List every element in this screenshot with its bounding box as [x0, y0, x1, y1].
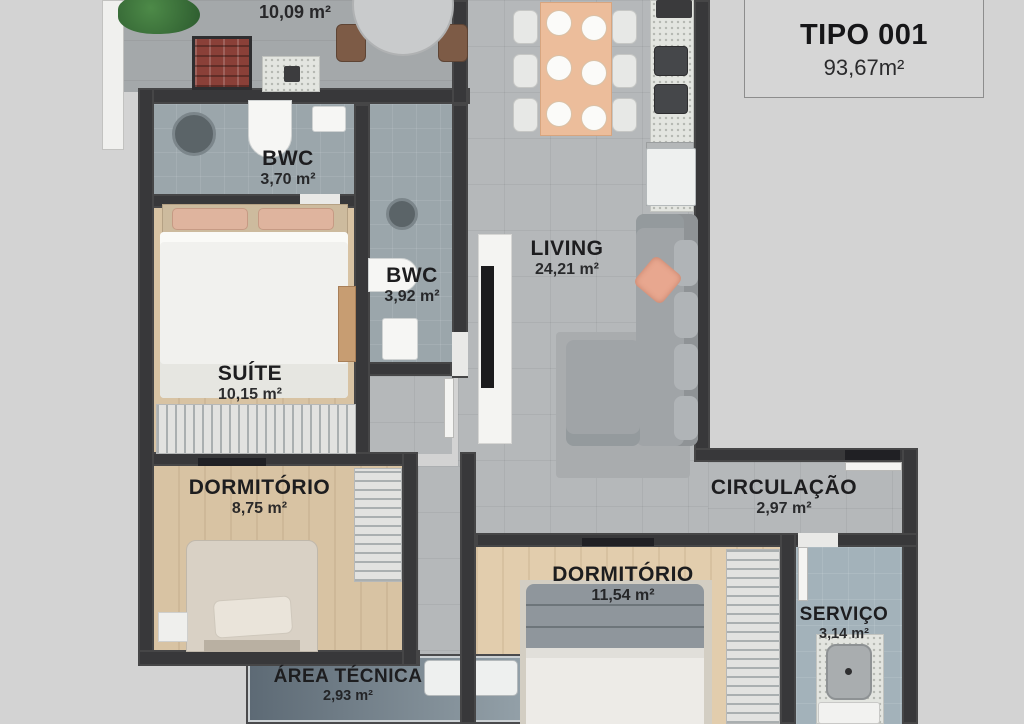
dorm1-headboard	[204, 640, 300, 652]
ac-condenser-unit	[472, 660, 518, 696]
room-area: 3,14 m²	[788, 626, 900, 643]
room-label-living: LIVING 24,21 m²	[486, 237, 648, 280]
tank-drain	[845, 668, 852, 675]
room-area: 3,70 m²	[233, 171, 343, 189]
wall-left-outer	[138, 88, 154, 666]
washer	[818, 702, 880, 724]
tv	[481, 266, 494, 388]
entry-door	[845, 450, 900, 460]
bbq-grill	[192, 36, 252, 90]
dorm2-wardrobe	[726, 549, 780, 724]
room-area: 3,92 m²	[362, 288, 462, 306]
room-name: SUÍTE	[185, 362, 315, 386]
unit-total-area: 93,67m²	[745, 55, 983, 81]
place-setting	[546, 101, 572, 127]
room-label-servico: SERVIÇO 3,14 m²	[788, 604, 900, 643]
door-leaf-servico	[798, 547, 808, 601]
door-lintel-dormitorio2	[582, 538, 654, 546]
place-setting	[546, 10, 572, 36]
bwc2-shower	[386, 198, 418, 230]
place-setting	[546, 55, 572, 81]
room-area: 8,75 m²	[172, 500, 347, 518]
room-label-dormitorio-1: DORMITÓRIO 8,75 m²	[172, 476, 347, 519]
room-name: DORMITÓRIO	[523, 563, 723, 587]
bwc2-sink	[382, 318, 418, 360]
entry-door-leaf	[845, 462, 902, 471]
suite-pillow	[258, 208, 334, 230]
wall-dorm1-right	[402, 452, 418, 666]
door-gap-bwc2	[452, 332, 468, 376]
dining-chair	[612, 98, 637, 132]
dining-chair	[513, 98, 538, 132]
dorm1-nightstand	[158, 612, 188, 642]
room-label-suite: SUÍTE 10,15 m²	[185, 362, 315, 405]
kitchen-sink	[654, 84, 688, 114]
dining-chair	[612, 54, 637, 88]
title-block: TIPO 001 93,67m²	[744, 0, 984, 98]
room-name: LIVING	[486, 237, 648, 261]
dorm2-bed	[526, 648, 704, 724]
room-area: 10,15 m²	[185, 386, 315, 404]
floor-plan: 10,09 m² BWC 3,70 m² BWC 3,92 m² LIVING …	[0, 0, 1024, 724]
balcony-sink	[284, 66, 300, 82]
sofa-cushion	[674, 292, 698, 338]
suite-wardrobe	[156, 404, 356, 454]
wall-right-outer	[902, 448, 918, 724]
sofa-cushion	[674, 344, 698, 390]
room-name: DORMITÓRIO	[172, 476, 347, 500]
dorm1-pillow	[213, 595, 293, 638]
unit-type-label: TIPO 001	[745, 19, 983, 52]
dining-chair	[612, 10, 637, 44]
room-label-bwc-suite: BWC 3,70 m²	[233, 147, 343, 190]
door-lintel-dormitorio1	[198, 458, 266, 466]
side-table	[646, 148, 696, 206]
wall-dorm2-left	[460, 452, 476, 724]
sofa-cushion	[674, 396, 698, 440]
cooktop	[656, 0, 692, 18]
wall-suite-dorm1	[152, 452, 418, 466]
room-area: 2,97 m²	[684, 500, 884, 518]
sofa-chaise	[566, 340, 640, 446]
dining-chair	[513, 10, 538, 44]
place-setting	[581, 15, 607, 41]
room-label-circulacao: CIRCULAÇÃO 2,97 m²	[684, 476, 884, 519]
wall-bwc2-south	[368, 362, 452, 376]
hall-vestibule-floor	[368, 376, 452, 454]
dining-table	[540, 2, 612, 136]
room-name: ÁREA TÉCNICA	[258, 666, 438, 688]
suite-pillow	[172, 208, 248, 230]
dorm1-wardrobe	[354, 468, 402, 582]
kitchen-sink	[654, 46, 688, 76]
suite-desk	[338, 286, 356, 362]
room-name: BWC	[233, 147, 343, 171]
place-setting	[581, 105, 607, 131]
room-name: BWC	[362, 264, 462, 288]
corridor-floor	[418, 466, 460, 658]
room-label-area-tecnica: ÁREA TÉCNICA 2,93 m²	[258, 666, 438, 705]
door-gap-servico	[798, 533, 838, 547]
bwc1-counter-sink	[312, 106, 346, 132]
room-name: SERVIÇO	[788, 604, 900, 626]
room-label-bwc-social: BWC 3,92 m²	[362, 264, 462, 307]
bwc1-sink	[172, 112, 216, 156]
dining-chair	[513, 54, 538, 88]
place-setting	[581, 60, 607, 86]
room-area: 10,09 m²	[230, 2, 360, 23]
room-name: CIRCULAÇÃO	[684, 476, 884, 500]
room-area: 2,93 m²	[258, 688, 438, 705]
room-label-sacada: 10,09 m²	[230, 2, 360, 23]
door-leaf-suite-hall	[444, 378, 454, 438]
wall-bottom	[138, 650, 420, 666]
room-area: 24,21 m²	[486, 261, 648, 279]
room-label-dormitorio-2: DORMITÓRIO 11,54 m²	[523, 563, 723, 606]
room-area: 11,54 m²	[523, 587, 723, 605]
